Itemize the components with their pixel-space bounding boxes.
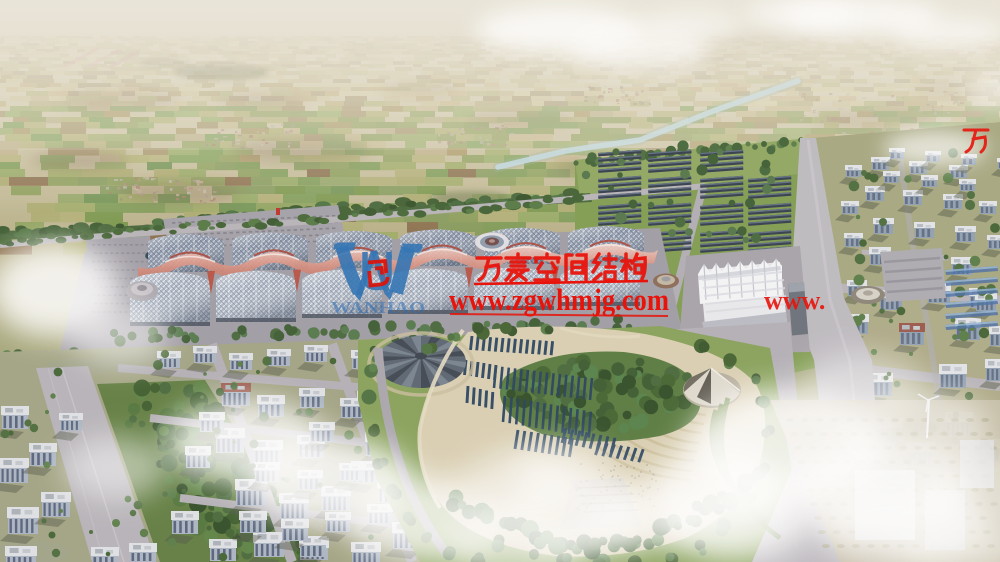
svg-text:www.: www. <box>764 286 825 315</box>
svg-text:WANHAO: WANHAO <box>331 298 425 317</box>
svg-text:www.zgwhmjg.com: www.zgwhmjg.com <box>449 282 669 317</box>
